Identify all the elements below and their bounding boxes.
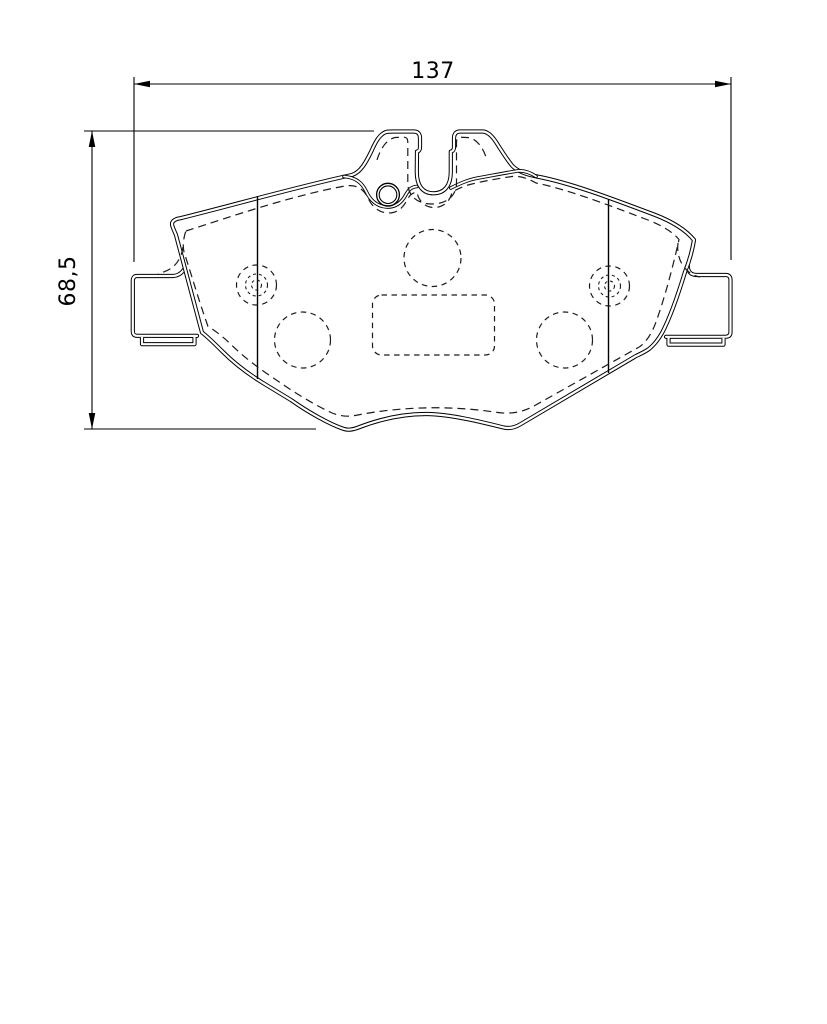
backplate-outline <box>172 132 694 430</box>
technical-drawing-canvas: 137 68,5 <box>0 0 827 1024</box>
width-dimension-label: 137 <box>411 59 455 84</box>
drawing-page: 137 68,5 <box>0 0 827 1024</box>
arrow-down-icon <box>89 413 96 429</box>
arrow-up-icon <box>89 131 96 147</box>
arrow-right-icon <box>715 81 731 88</box>
height-dimension-label: 68,5 <box>56 256 81 307</box>
arrow-left-icon <box>134 81 150 88</box>
